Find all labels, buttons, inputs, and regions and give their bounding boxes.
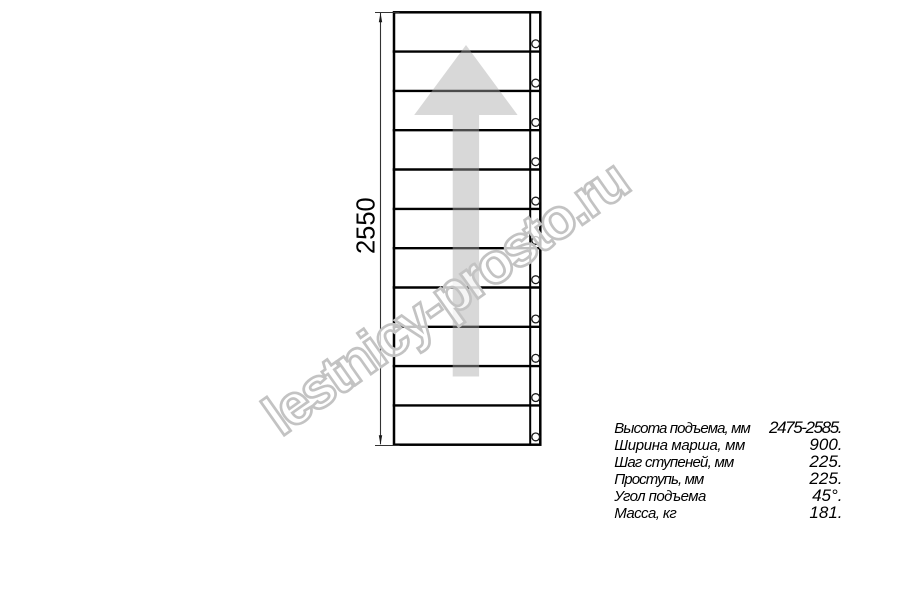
svg-text:Шаг ступеней, мм: Шаг ступеней, мм (614, 454, 734, 471)
svg-text:Масса, кг: Масса, кг (614, 505, 677, 522)
svg-text:181.: 181. (809, 503, 842, 522)
svg-text:Высота подъема, мм: Высота подъема, мм (614, 420, 751, 437)
svg-text:Угол подъема: Угол подъема (613, 488, 706, 505)
svg-text:2550: 2550 (353, 197, 381, 254)
svg-text:Проступь, мм: Проступь, мм (614, 471, 704, 488)
svg-text:Ширина марша, мм: Ширина марша, мм (614, 437, 745, 454)
